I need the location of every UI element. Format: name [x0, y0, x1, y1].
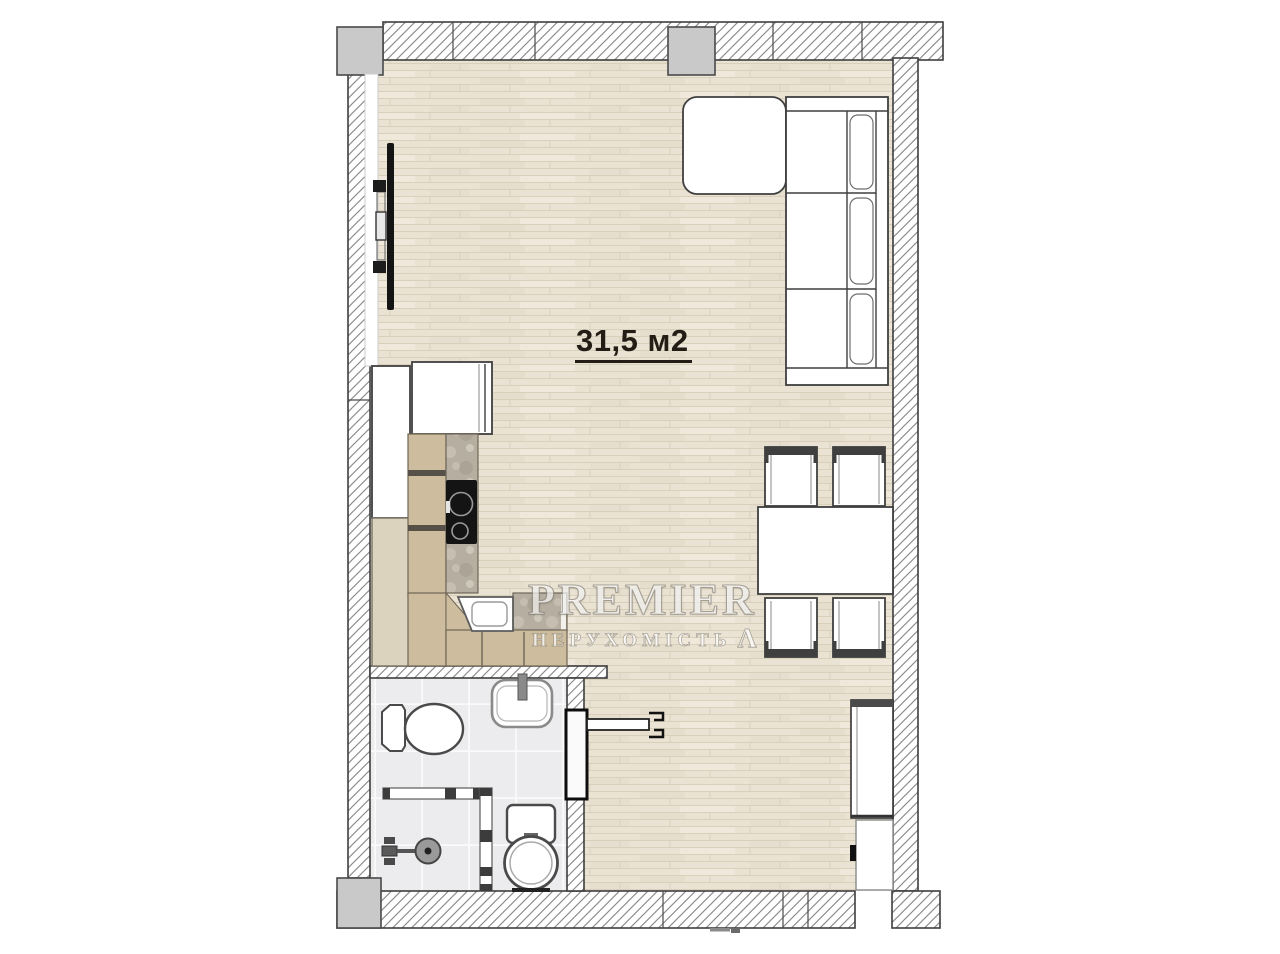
shower-mixer [382, 837, 397, 865]
floor-plan: 31,5 м2 PREMIER НЕРУХОМІСТЬ Λ [0, 0, 1280, 954]
tv-mount-plate [376, 212, 386, 240]
column-top-left [337, 27, 383, 75]
countertop-end-cap [561, 594, 566, 631]
entrance-door [856, 820, 893, 890]
tv-mount-bracket-bottom [373, 261, 386, 273]
area-label: 31,5 м2 [575, 323, 692, 363]
chair [833, 598, 885, 657]
kitchen-cabinet-front [446, 630, 567, 666]
bathroom-door-frame [566, 710, 587, 799]
fridge [412, 362, 492, 434]
toilet [382, 704, 463, 754]
sofa-back-cushion [850, 294, 873, 364]
chair [765, 598, 817, 657]
cabinet-tall-wood [372, 518, 410, 666]
wall-bottom-right [892, 891, 940, 928]
sofa-back-cushion [850, 115, 873, 189]
cabinet-divider [408, 525, 446, 531]
column-bottom-left [337, 878, 381, 928]
shower-screen-vertical [480, 788, 492, 891]
hallway-cabinet-top-edge [851, 700, 893, 707]
sofa-ottoman [683, 97, 786, 194]
entrance-door-handle [850, 845, 856, 861]
chair [765, 447, 817, 506]
tv [387, 143, 394, 310]
cabinet-tall-white [372, 366, 410, 518]
cooktop-handle [446, 501, 450, 513]
hallway [850, 700, 893, 890]
wall-bathroom-top [370, 666, 607, 678]
chair [833, 447, 885, 506]
kitchen-corner-cabinet [408, 593, 446, 666]
wall-bottom-left [337, 891, 855, 928]
column-top-middle [668, 27, 715, 75]
floor-plan-canvas [0, 0, 1280, 954]
cooktop [446, 480, 477, 544]
washing-machine [505, 805, 558, 892]
wall-top [383, 22, 943, 60]
sofa-back-cushion [850, 198, 873, 284]
dining-table [758, 507, 893, 594]
cabinet-divider [408, 470, 446, 476]
threshold-ticks [710, 928, 740, 933]
shower-head [416, 839, 441, 864]
bathroom-sink [492, 674, 552, 727]
shower-screen-horizontal [383, 788, 480, 799]
faucet [518, 674, 527, 700]
kitchen-base-cabinets [408, 434, 446, 597]
bathroom-door-leaf [587, 719, 649, 730]
wall-right [893, 58, 918, 891]
kitchen-countertop-bottom [513, 593, 567, 632]
tv-mount-bracket-top [373, 180, 386, 192]
